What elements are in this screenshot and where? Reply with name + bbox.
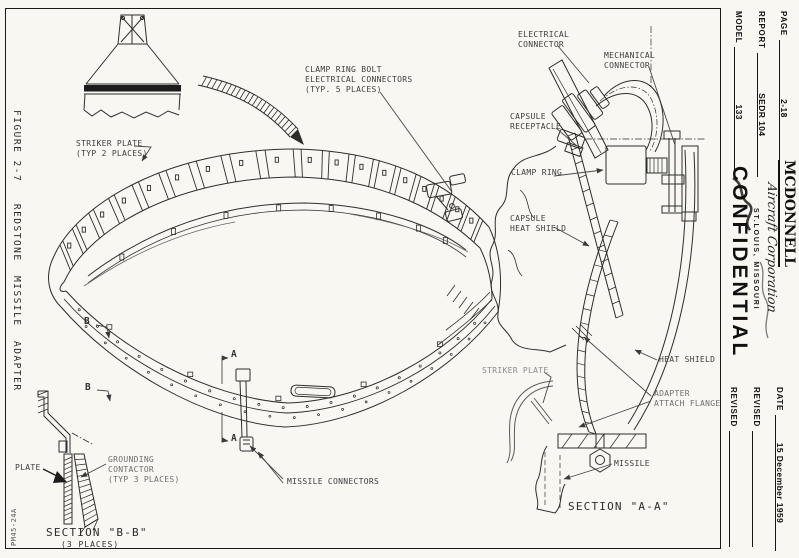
- callout-electrical-connector: ELECTRICAL CONNECTOR: [518, 30, 569, 50]
- callout-mechanical-connector: MECHANICAL CONNECTOR: [604, 51, 655, 71]
- titleblock-model-field: MODEL133: [734, 11, 753, 177]
- report-rule: SEDR 104: [757, 53, 768, 177]
- date-rule: 15 December 1959: [775, 415, 786, 551]
- company-location-text: ST.LOUIS, MISSOURI: [752, 208, 759, 310]
- date-value: 15 December 1959: [775, 443, 785, 524]
- figure-caption: FIGURE 2-7 REDSTONE MISSILE ADAPTER: [11, 110, 27, 406]
- section-marker-a-bottom: A: [231, 433, 237, 444]
- drawing-number: PM45-24A: [7, 471, 18, 546]
- titleblock-report-field: REPORTSEDR 104: [757, 11, 776, 177]
- model-value: 133: [734, 105, 744, 120]
- report-label: REPORT: [757, 11, 766, 51]
- callout-missile: MISSILE: [614, 459, 650, 469]
- callout-clamp-ring: CLAMP RING: [511, 168, 562, 178]
- callout-striker-plate: STRIKER PLATE: [482, 366, 549, 376]
- page-label: PAGE: [779, 11, 788, 38]
- titleblock-revised1-field: REVISED: [752, 387, 771, 547]
- classification-stamp: CONFIDENTIAL: [727, 166, 753, 379]
- model-rule: 133: [734, 47, 745, 177]
- revised2-label: REVISED: [729, 387, 738, 429]
- date-label: DATE: [775, 387, 784, 413]
- company-script: Aircraft Corporation: [765, 183, 781, 323]
- titleblock-page-field: PAGE2-18: [779, 11, 798, 177]
- model-label: MODEL: [734, 11, 743, 45]
- revised1-label: REVISED: [752, 387, 761, 429]
- section-bb-note: (3 PLACES): [61, 540, 119, 549]
- callout-plate: PLATE: [15, 463, 41, 473]
- page-rule: 2-18: [779, 40, 790, 177]
- section-aa-title: SECTION "A-A": [568, 500, 670, 513]
- page-value: 2-18: [779, 99, 789, 118]
- callout-clamp-ring-bolt: CLAMP RING BOLT ELECTRICAL CONNECTORS (T…: [305, 65, 412, 94]
- callout-heat-shield: HEAT SHIELD: [659, 355, 715, 365]
- callout-adapter-attach-flange: ADAPTER ATTACH FLANGE: [654, 389, 721, 409]
- classification-text: CONFIDENTIAL: [727, 166, 751, 358]
- revised2-rule: [729, 431, 730, 547]
- drawing-sheet: ELECTRICAL CONNECTOR MECHANICAL CONNECTO…: [0, 0, 799, 558]
- section-marker-b-top: B: [84, 316, 90, 327]
- titleblock-revised2-field: REVISED: [729, 387, 748, 547]
- callout-missile-connectors: MISSILE CONNECTORS: [287, 477, 379, 487]
- titleblock-date-field: DATE15 December 1959: [775, 387, 794, 551]
- section-marker-b-bottom: B: [85, 382, 91, 393]
- callout-capsule-heat-shield: CAPSULE HEAT SHIELD: [510, 214, 566, 234]
- report-value: SEDR 104: [757, 93, 767, 136]
- company-script-text: Aircraft Corporation: [765, 182, 780, 314]
- callout-grounding-contactor: GROUNDING CONTACTOR (TYP 3 PLACES): [108, 455, 180, 484]
- section-marker-a-top: A: [231, 349, 237, 360]
- company-location: ST.LOUIS, MISSOURI: [752, 208, 762, 336]
- callout-striker-plate-typ: STRIKER PLATE (TYP 2 PLACES): [76, 139, 148, 159]
- revised1-rule: [752, 431, 753, 547]
- section-bb-title: SECTION "B-B": [46, 526, 148, 539]
- callout-capsule-receptacle: CAPSULE RECEPTACLE: [510, 112, 561, 132]
